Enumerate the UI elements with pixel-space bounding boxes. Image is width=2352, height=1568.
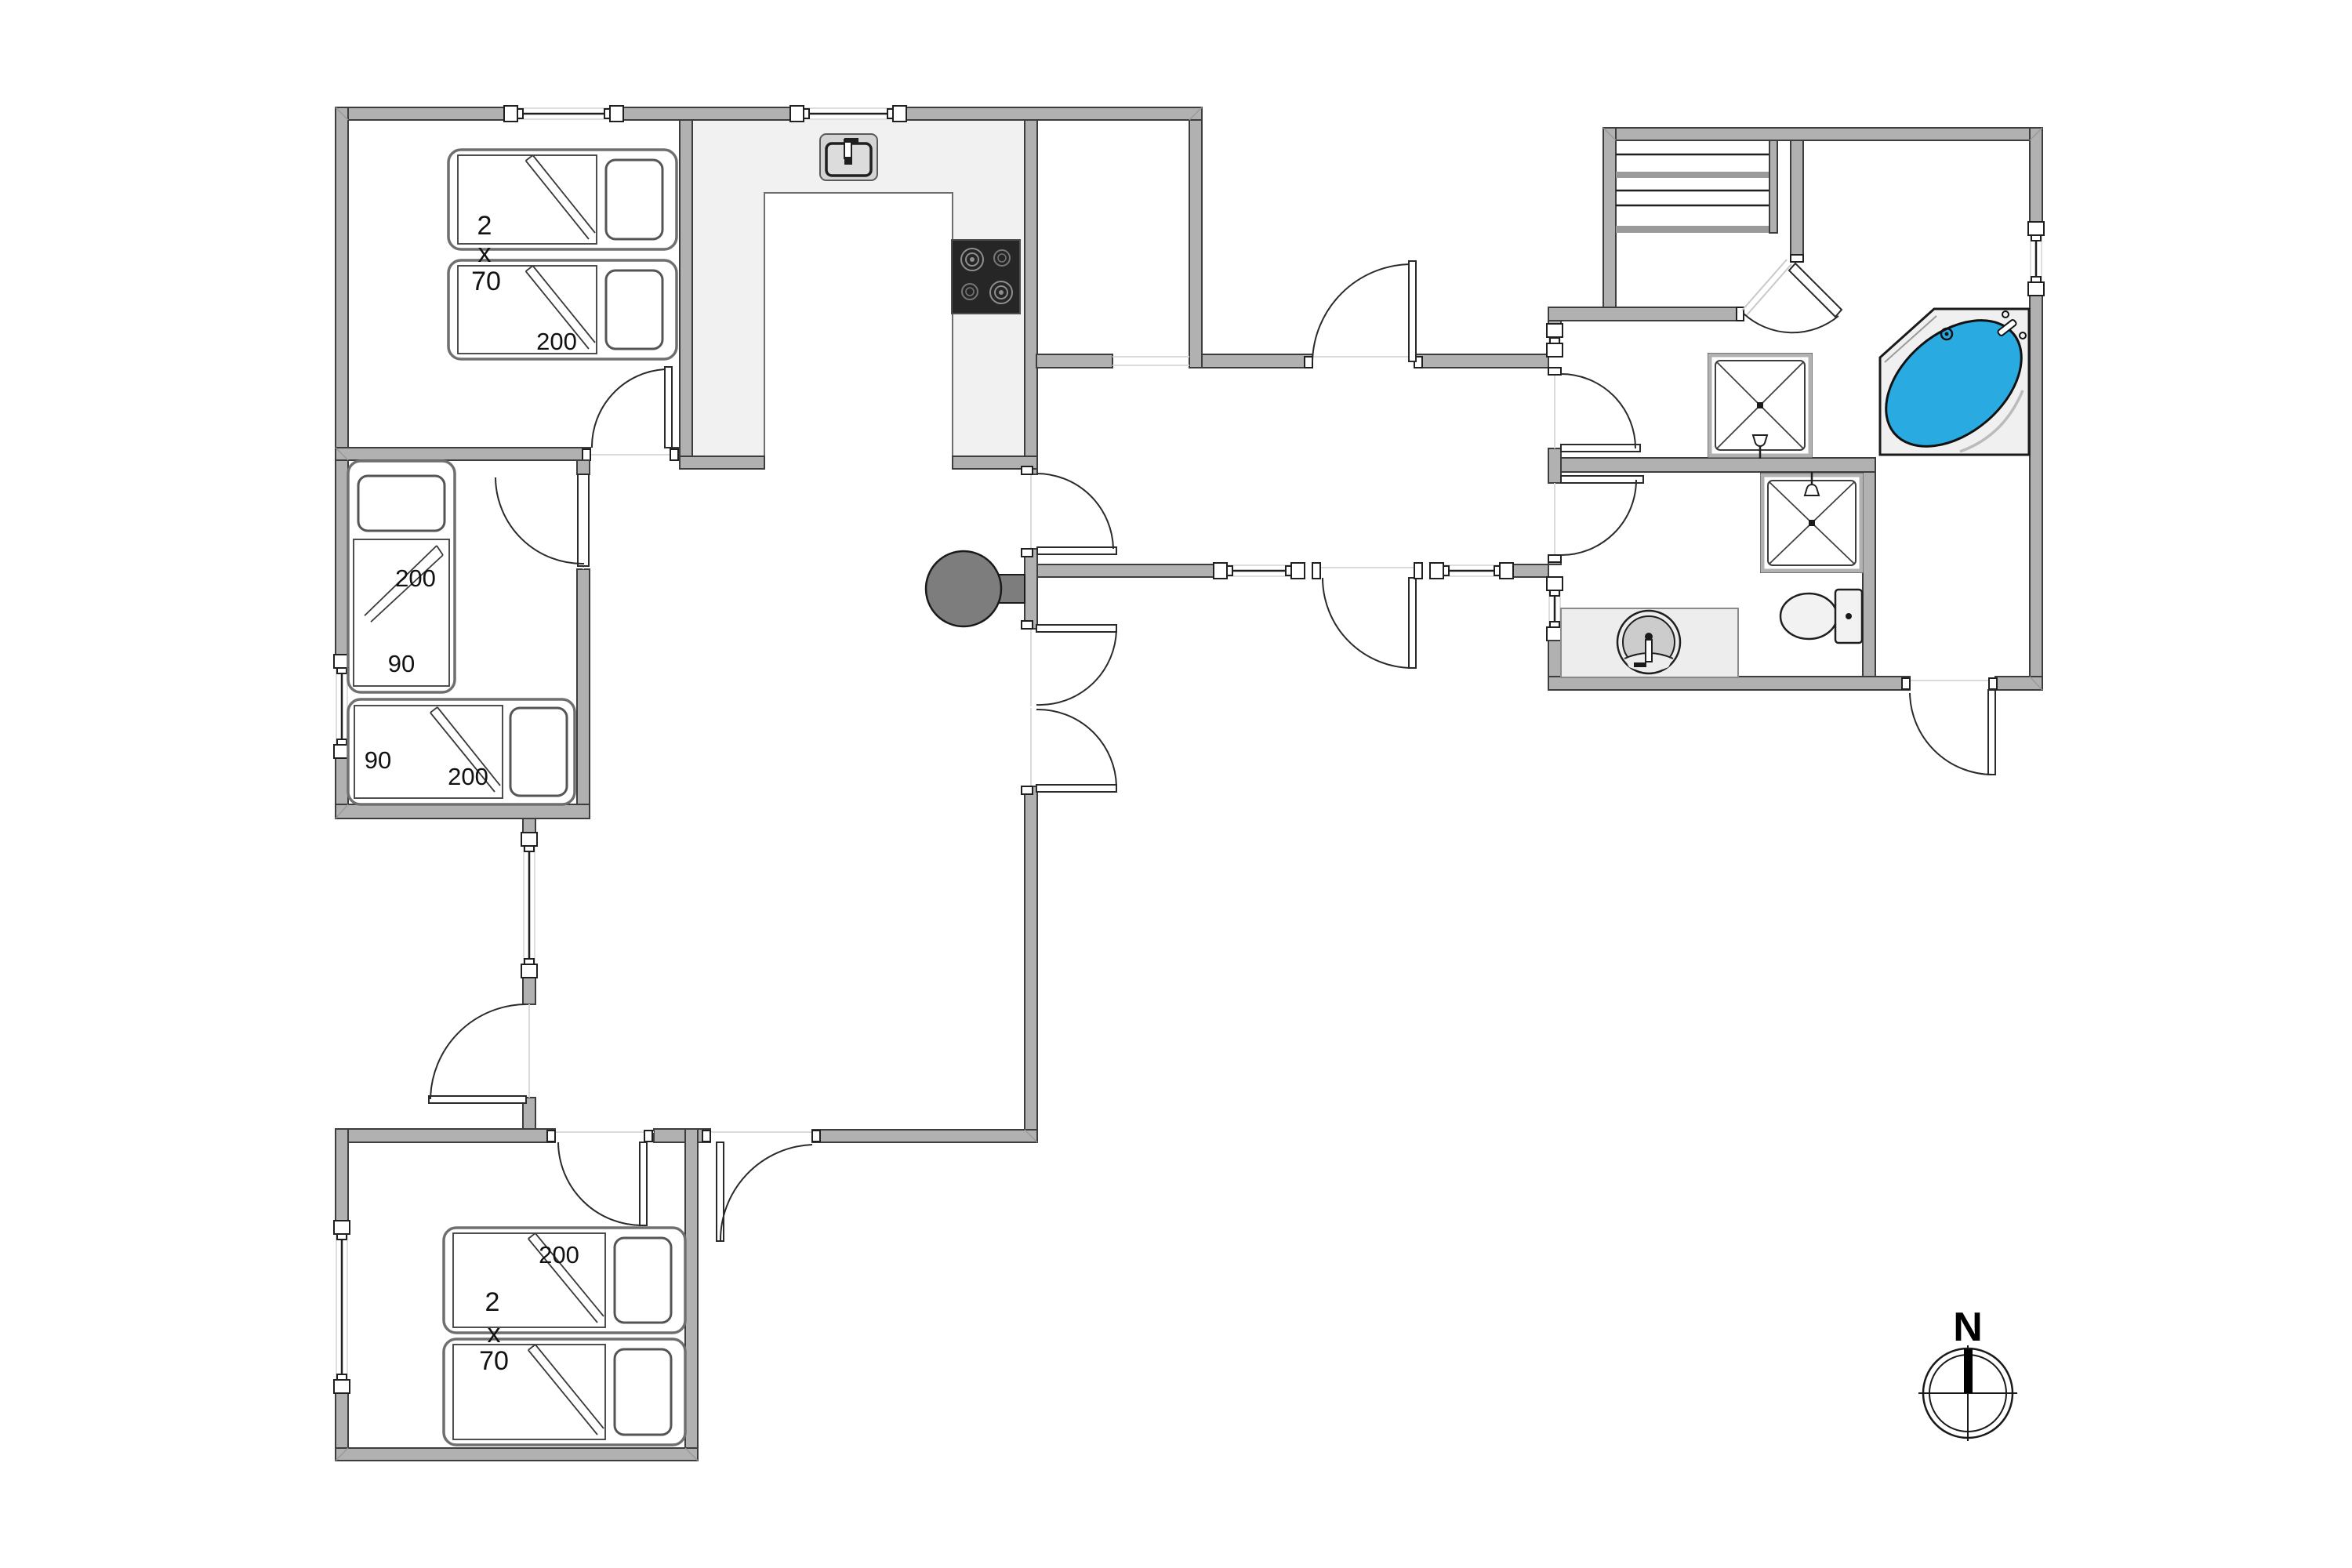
svg-text:200: 200: [539, 1241, 579, 1269]
svg-text:200: 200: [536, 328, 577, 355]
svg-text:70: 70: [479, 1346, 509, 1376]
svg-text:200: 200: [448, 763, 488, 790]
svg-text:90: 90: [365, 746, 391, 774]
svg-text:200: 200: [395, 564, 436, 592]
svg-text:x: x: [488, 1319, 501, 1348]
svg-text:90: 90: [388, 650, 415, 677]
svg-text:70: 70: [471, 267, 501, 296]
svg-text:x: x: [478, 238, 492, 268]
svg-text:2: 2: [477, 211, 492, 241]
svg-text:N: N: [1953, 1305, 1983, 1350]
svg-text:2: 2: [485, 1287, 500, 1317]
